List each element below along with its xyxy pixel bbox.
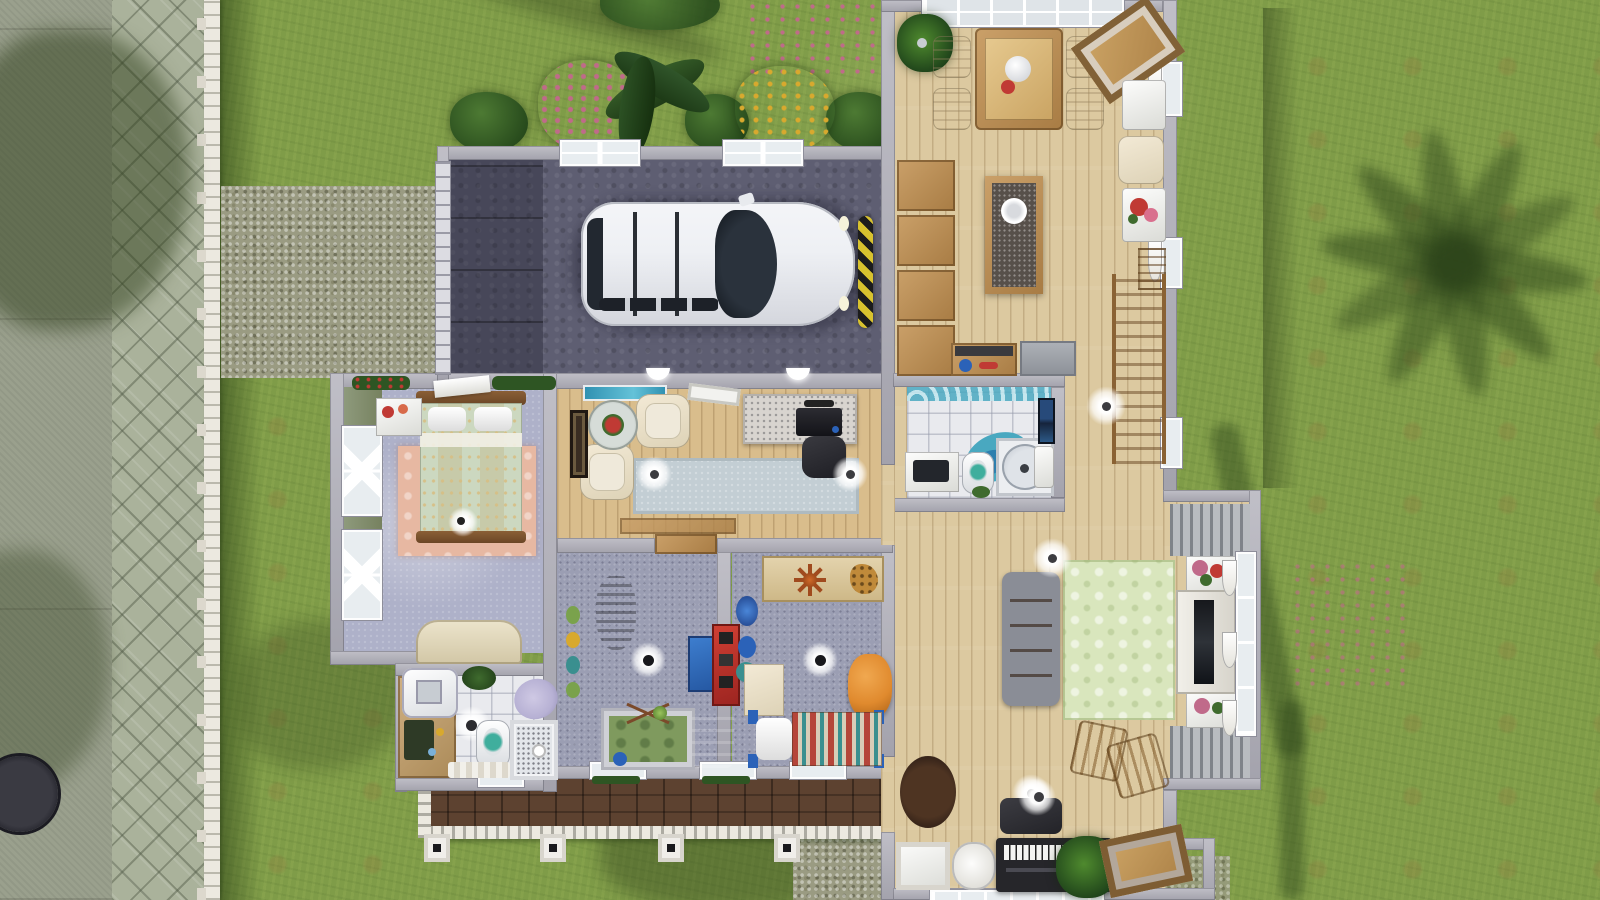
bay-curtain bbox=[1222, 632, 1237, 668]
side-table-flowers[interactable] bbox=[1122, 188, 1166, 242]
kids-bed[interactable] bbox=[748, 710, 884, 768]
armchair[interactable] bbox=[636, 394, 690, 448]
ceiling-lamp-glow[interactable] bbox=[1032, 538, 1072, 578]
porch-railing-return bbox=[418, 786, 431, 838]
car-headlight bbox=[839, 296, 849, 311]
table-flowers bbox=[1001, 80, 1015, 94]
wall-stickers bbox=[564, 606, 582, 706]
porch-railing bbox=[430, 826, 882, 839]
car-rear-window bbox=[587, 218, 603, 310]
wall-bay-north bbox=[1163, 490, 1261, 502]
picket-fence bbox=[204, 0, 220, 900]
banana-plant[interactable] bbox=[590, 20, 730, 160]
window-planter-box bbox=[702, 776, 750, 784]
pink-flower-patch-right bbox=[1290, 560, 1410, 690]
porch-column bbox=[658, 834, 684, 862]
sofa[interactable] bbox=[1002, 572, 1060, 706]
accent-armchair[interactable] bbox=[1118, 136, 1164, 184]
ceiling-lamp-glow[interactable] bbox=[636, 456, 672, 492]
ceiling-lamp-glow[interactable] bbox=[832, 456, 868, 492]
bath2-toilet[interactable] bbox=[476, 720, 510, 768]
garage-window bbox=[723, 140, 803, 166]
palm-trunk-shadow bbox=[1280, 700, 1304, 900]
porch-column bbox=[424, 834, 450, 862]
shrub[interactable] bbox=[450, 92, 528, 152]
bed-sheet-fold bbox=[420, 433, 522, 447]
crib-playpen[interactable] bbox=[601, 708, 695, 770]
hallway-door-open[interactable] bbox=[655, 534, 717, 554]
bed-pillow bbox=[428, 407, 466, 431]
bed-lamp[interactable] bbox=[448, 507, 478, 537]
dining-chair[interactable] bbox=[1066, 88, 1104, 130]
wall-study-south-b bbox=[717, 538, 893, 553]
kids-dresser[interactable] bbox=[744, 664, 784, 716]
bedroom-window bbox=[342, 530, 382, 620]
kids-bed-blanket bbox=[792, 712, 882, 766]
refrigerator[interactable] bbox=[1020, 341, 1076, 376]
plate-on-island bbox=[1001, 198, 1027, 224]
wall-painting[interactable] bbox=[570, 410, 588, 478]
bath2-sink[interactable] bbox=[402, 668, 458, 718]
table-flower-bouquet bbox=[602, 414, 624, 436]
bath-mat[interactable] bbox=[448, 762, 510, 778]
garage-door[interactable] bbox=[436, 162, 450, 374]
window-planter-box bbox=[592, 776, 640, 784]
garage-window bbox=[560, 140, 640, 166]
kids-bed-pillow bbox=[756, 718, 792, 760]
nightstand[interactable] bbox=[376, 398, 422, 436]
gravel-driveway bbox=[221, 186, 441, 378]
dresser[interactable] bbox=[416, 620, 522, 664]
garage-door-track bbox=[451, 160, 543, 375]
family-car[interactable] bbox=[581, 202, 855, 326]
wall-sink[interactable] bbox=[1034, 446, 1054, 488]
round-glass-table[interactable] bbox=[588, 400, 638, 450]
wall-study-south-a bbox=[557, 538, 655, 553]
ceiling-lamp-glow[interactable] bbox=[1086, 386, 1126, 426]
dining-chair[interactable] bbox=[933, 36, 971, 78]
bath2-plant bbox=[462, 666, 496, 690]
doorway-hall-living bbox=[881, 757, 895, 832]
bedroom-window bbox=[342, 426, 382, 516]
pet-bed[interactable] bbox=[952, 842, 996, 890]
ceiling-lamp-glow[interactable] bbox=[630, 642, 666, 678]
round-rug[interactable] bbox=[900, 756, 956, 828]
dining-chair[interactable] bbox=[933, 88, 971, 130]
fence-posts bbox=[197, 0, 206, 900]
orange-pouf[interactable] bbox=[848, 654, 892, 718]
rocking-chair[interactable] bbox=[692, 710, 734, 768]
palm-tree-shadow bbox=[1300, 110, 1600, 450]
planter-greenery bbox=[492, 376, 556, 390]
planter-greenery bbox=[352, 376, 410, 390]
bath2-shower[interactable] bbox=[510, 720, 558, 780]
side-table[interactable] bbox=[1122, 80, 1166, 130]
cat-scratching-post[interactable] bbox=[596, 576, 636, 650]
toy-mobile bbox=[625, 694, 671, 734]
dining-table[interactable] bbox=[975, 28, 1063, 130]
double-bed[interactable] bbox=[420, 391, 522, 543]
porch-column bbox=[540, 834, 566, 862]
wall-bay-south bbox=[1163, 778, 1261, 790]
pantry-shelves[interactable] bbox=[897, 160, 955, 376]
bathroom-wave-border bbox=[907, 387, 1051, 401]
bay-curtain bbox=[1222, 700, 1237, 736]
toilet-plant bbox=[972, 486, 990, 498]
house-shadow-east bbox=[1263, 8, 1299, 488]
hall-doormat bbox=[620, 518, 736, 534]
bathroom-vanity[interactable] bbox=[905, 452, 959, 492]
spider-toy bbox=[794, 564, 826, 596]
car-side-windows bbox=[599, 298, 719, 311]
louver-panel bbox=[1170, 504, 1250, 556]
car-windshield bbox=[715, 210, 777, 318]
blue-picture-frames bbox=[1038, 398, 1055, 444]
living-rug[interactable] bbox=[1063, 560, 1175, 720]
wall-bedroom-west bbox=[330, 373, 344, 665]
bay-window bbox=[1236, 552, 1256, 736]
kids-wall-shelf[interactable] bbox=[762, 556, 884, 602]
armchair[interactable] bbox=[580, 444, 634, 500]
ceiling-lamp-glow[interactable] bbox=[802, 642, 838, 678]
end-table[interactable] bbox=[896, 842, 950, 890]
kitchen-counter[interactable] bbox=[951, 343, 1017, 376]
sims-lot-overhead-view bbox=[0, 0, 1600, 900]
bay-curtain bbox=[1222, 560, 1237, 596]
staircase[interactable] bbox=[1112, 274, 1166, 464]
table-vase bbox=[1005, 56, 1031, 82]
doorway-study-hall bbox=[881, 465, 895, 545]
desktop-computer[interactable] bbox=[796, 408, 842, 436]
toy bbox=[613, 752, 627, 766]
car-headlight bbox=[839, 216, 849, 231]
bed-pillow bbox=[474, 407, 512, 431]
giraffe-toy bbox=[850, 564, 878, 594]
fence-shadow bbox=[220, 0, 262, 900]
wall-mainbath-south bbox=[893, 498, 1065, 512]
wall-garage-north bbox=[437, 146, 893, 160]
porch-column bbox=[774, 834, 800, 862]
kitchen-island[interactable] bbox=[985, 176, 1043, 294]
parking-bumper[interactable] bbox=[858, 216, 873, 328]
sphere-floor-lamp[interactable] bbox=[1018, 778, 1056, 816]
